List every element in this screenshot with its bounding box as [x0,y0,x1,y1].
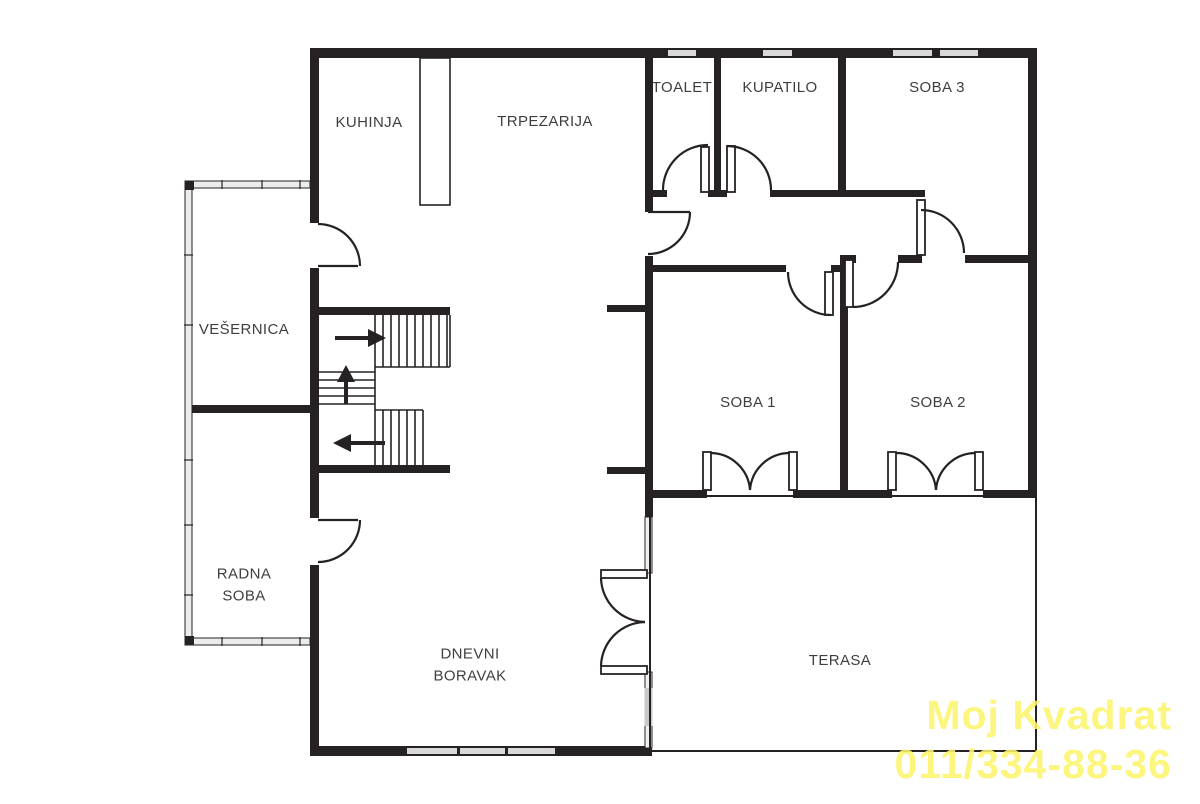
stair-arrow-right [335,329,386,347]
door-soba3 [917,200,964,255]
room-label-kupatilo: KUPATILO [742,77,817,99]
glass-wall [645,517,653,748]
room-label-kuhinja: KUHINJA [336,112,403,134]
door-soba2 [845,260,898,307]
floor-plan: KUHINJA TRPEZARIJA TOALET KUPATILO SOBA … [0,0,1200,804]
door-kupatilo [727,146,771,192]
room-label-soba1: SOBA 1 [720,392,776,414]
kitchen-partition [420,58,450,205]
room-label-dnevni-boravak: DNEVNI BORAVAK [415,643,525,687]
door-soba1 [788,272,833,315]
door-hodnik [648,212,690,254]
watermark-line2: 011/334-88-36 [895,740,1172,788]
door-dnevni-boravak [318,520,360,562]
door-toalet [663,145,709,192]
room-label-terasa: TERASA [809,650,871,672]
stair-arrow-left [333,434,385,452]
stair-arrow-up [337,365,355,404]
staircase [313,315,450,467]
room-label-soba2: SOBA 2 [910,392,966,414]
french-door-terasa [601,570,647,674]
room-label-radna-soba: RADNA SOBA [199,563,289,607]
watermark: Moj Kvadrat 011/334-88-36 [895,691,1172,788]
french-door-soba1 [703,452,797,490]
floor-plan-drawing [0,0,1200,804]
door-kuhinja [318,224,360,266]
room-label-vesernica: VEŠERNICA [199,319,289,341]
french-door-soba2 [888,452,983,490]
watermark-line1: Moj Kvadrat [895,691,1172,739]
room-label-toalet: TOALET [652,77,712,99]
room-label-trpezarija: TRPEZARIJA [497,111,593,133]
room-label-soba3: SOBA 3 [909,77,965,99]
